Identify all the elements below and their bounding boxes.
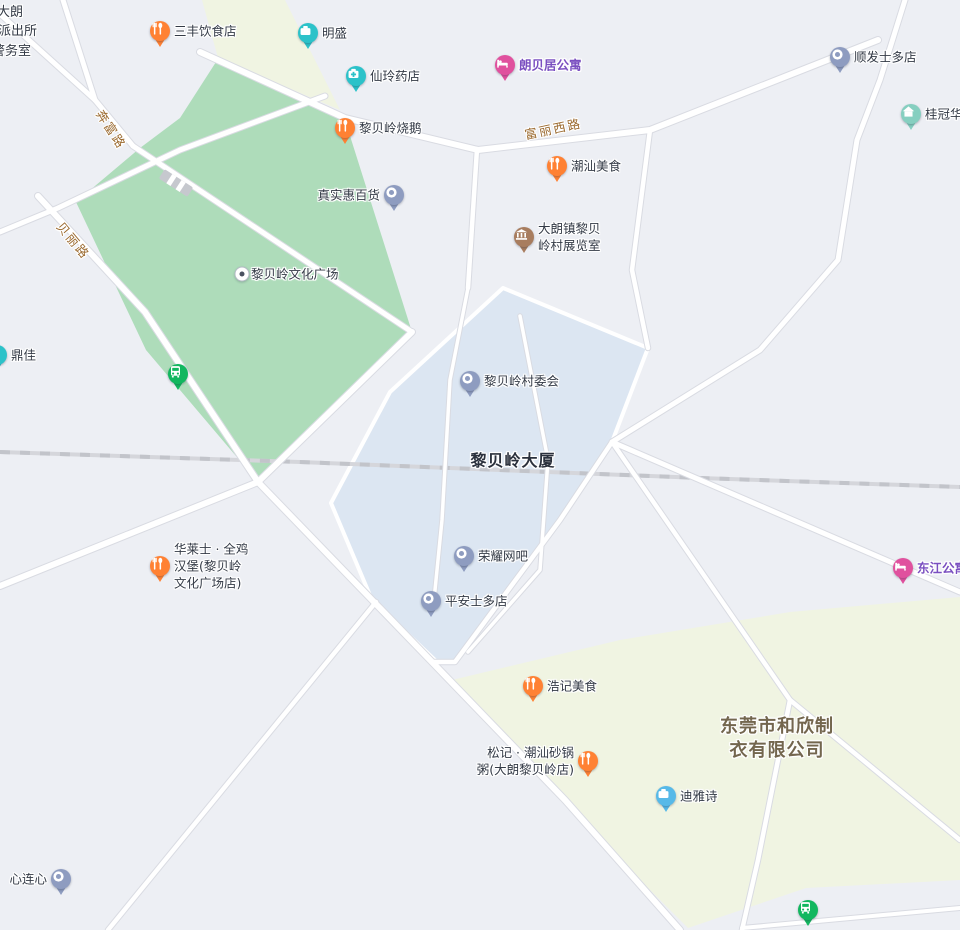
village-exhibition-room-label[interactable]: 大朗镇黎贝岭村展览室 (538, 220, 601, 254)
pin-head (523, 676, 543, 696)
pin-head (893, 558, 913, 578)
zhenshihui-store-label-line-1: 真实惠百货 (317, 187, 380, 204)
pin-head (335, 118, 355, 138)
ring-dot-icon (421, 591, 436, 606)
bus-icon (168, 364, 183, 379)
ring-dot-icon (51, 869, 66, 884)
xianling-pharmacy-label-line-1: 仙玲药店 (370, 68, 420, 85)
libeiling-roast-goose-pin[interactable] (334, 118, 356, 148)
village-exhibition-room-pin[interactable] (513, 227, 535, 257)
hualaishi-burger-label-line-1: 华莱士 · 全鸡 (174, 541, 248, 558)
libeiling-roast-goose-label[interactable]: 黎贝岭烧鹅 (359, 120, 422, 137)
langbeiju-apartment-label-line-1: 朗贝居公寓 (519, 57, 582, 74)
village-exhibition-room-label-line-2: 岭村展览室 (538, 237, 601, 254)
pingan-store-label-line-1: 平安士多店 (445, 593, 508, 610)
pin-head (51, 869, 71, 889)
bed-icon (495, 55, 510, 70)
songji-casserole-porridge-label-line-1: 松记 · 潮汕砂锅 (477, 744, 574, 761)
diyashi-pin[interactable] (655, 786, 677, 816)
map-viewport[interactable]: 三丰饮食店 明盛 仙玲药店 朗贝居公寓顺发士多店 桂冠华庭 黎贝岭烧鹅 潮汕美食… (0, 0, 960, 930)
shunfa-store-pin[interactable] (829, 47, 851, 77)
pin-head (901, 104, 921, 124)
dongjiang-apartment-label[interactable]: 东江公寓 (917, 560, 960, 577)
sanfeng-restaurant-pin[interactable] (149, 21, 171, 51)
ring-dot-icon (460, 371, 475, 386)
shunfa-store-label[interactable]: 顺发士多店 (854, 49, 917, 66)
village-committee-pin[interactable] (459, 371, 481, 401)
pin-head (298, 23, 318, 43)
xinlianxin-label-line-1: 心连心 (9, 871, 47, 888)
haoji-food-label[interactable]: 浩记美食 (547, 678, 597, 695)
chaoshan-food-label-line-1: 潮汕美食 (571, 158, 621, 175)
xinlianxin-pin[interactable] (50, 869, 72, 899)
langbeiju-apartment-pin[interactable] (494, 55, 516, 85)
songji-casserole-porridge-label-line-2: 粥(大朗黎贝岭店) (477, 761, 574, 778)
pin-head (150, 21, 170, 41)
ring-dot-icon (454, 546, 469, 561)
zhenshihui-store-pin[interactable] (383, 185, 405, 215)
pin-head (421, 591, 441, 611)
pin-head (547, 156, 567, 176)
police-station-label-line-3: 警务室 (0, 40, 31, 59)
fork-spoon-icon (150, 21, 165, 36)
pin-head (0, 345, 7, 365)
mingsheng-label-line-1: 明盛 (322, 25, 347, 42)
ring-dot-icon (830, 47, 845, 62)
pin-head (460, 371, 480, 391)
fork-spoon-icon (150, 556, 165, 571)
chaoshan-food-pin[interactable] (546, 156, 568, 186)
building-label-libeiling-dasha-line-1: 黎贝岭大厦 (470, 451, 555, 471)
culture-square-dot-marker[interactable] (235, 267, 250, 282)
shunfa-store-label-line-1: 顺发士多店 (854, 49, 917, 66)
culture-square-dot-label[interactable]: 黎贝岭文化广场 (251, 266, 339, 283)
house-icon (901, 104, 916, 119)
police-station-label-line-1: 局大朗 (0, 1, 23, 20)
xianling-pharmacy-label[interactable]: 仙玲药店 (370, 68, 420, 85)
company-label-hexin-line-1: 东莞市和欣制 (720, 715, 834, 739)
diyashi-label-line-1: 迪雅诗 (680, 788, 718, 805)
briefcase-icon (298, 23, 313, 38)
bus-icon (798, 900, 813, 915)
hualaishi-burger-label[interactable]: 华莱士 · 全鸡汉堡(黎贝岭文化广场店) (174, 541, 248, 592)
bus-stop-2-pin[interactable] (797, 900, 819, 930)
pin-head (656, 786, 676, 806)
songji-casserole-porridge-label[interactable]: 松记 · 潮汕砂锅粥(大朗黎贝岭店) (477, 744, 574, 778)
company-label-hexin: 东莞市和欣制衣有限公司 (720, 715, 834, 763)
pingan-store-label[interactable]: 平安士多店 (445, 593, 508, 610)
bank-columns-icon (514, 227, 529, 242)
medkit-icon (346, 66, 361, 81)
xinlianxin-label[interactable]: 心连心 (9, 871, 47, 888)
guiguan-huating-label[interactable]: 桂冠华庭 (925, 106, 960, 123)
village-exhibition-room-label-line-1: 大朗镇黎贝 (538, 220, 601, 237)
rongyao-internet-cafe-pin[interactable] (453, 546, 475, 576)
police-station-label-line-2: 派出所 (0, 20, 37, 39)
pin-head (168, 364, 188, 384)
zhenshihui-store-label[interactable]: 真实惠百货 (317, 187, 380, 204)
songji-casserole-porridge-pin[interactable] (577, 751, 599, 781)
briefcase-icon (0, 345, 2, 360)
company-label-hexin-line-2: 衣有限公司 (720, 739, 834, 763)
culture-square-dot-label-line-1: 黎贝岭文化广场 (251, 266, 339, 283)
rongyao-internet-cafe-label-line-1: 荣耀网吧 (478, 548, 528, 565)
fork-spoon-icon (523, 676, 538, 691)
rongyao-internet-cafe-label[interactable]: 荣耀网吧 (478, 548, 528, 565)
hualaishi-burger-pin[interactable] (149, 556, 171, 586)
pin-head (454, 546, 474, 566)
hualaishi-burger-label-line-2: 汉堡(黎贝岭 (174, 558, 248, 575)
building-label-libeiling-dasha: 黎贝岭大厦 (470, 451, 555, 471)
fork-spoon-icon (335, 118, 350, 133)
sanfeng-restaurant-label-line-1: 三丰饮食店 (174, 23, 237, 40)
pin-head (514, 227, 534, 247)
libeiling-roast-goose-label-line-1: 黎贝岭烧鹅 (359, 120, 422, 137)
haoji-food-label-line-1: 浩记美食 (547, 678, 597, 695)
mingsheng-label[interactable]: 明盛 (322, 25, 347, 42)
bus-stop-1-pin[interactable] (167, 364, 189, 394)
mingsheng-pin[interactable] (297, 23, 319, 53)
pingan-store-pin[interactable] (420, 591, 442, 621)
pin-head (150, 556, 170, 576)
dongjiang-apartment-pin[interactable] (892, 558, 914, 588)
village-committee-label-line-1: 黎贝岭村委会 (484, 373, 559, 390)
dingjia-label[interactable]: 鼎佳 (11, 347, 36, 364)
pin-head (495, 55, 515, 75)
diyashi-label[interactable]: 迪雅诗 (680, 788, 718, 805)
pin-head (384, 185, 404, 205)
fork-spoon-icon (547, 156, 562, 171)
chaoshan-food-label[interactable]: 潮汕美食 (571, 158, 621, 175)
guiguan-huating-label-line-1: 桂冠华庭 (925, 106, 960, 123)
pin-head (830, 47, 850, 67)
langbeiju-apartment-label[interactable]: 朗贝居公寓 (519, 57, 582, 74)
sanfeng-restaurant-label[interactable]: 三丰饮食店 (174, 23, 237, 40)
briefcase-icon (656, 786, 671, 801)
hualaishi-burger-label-line-3: 文化广场店) (174, 575, 248, 592)
bed-icon (893, 558, 908, 573)
pin-head (346, 66, 366, 86)
pin-head (578, 751, 598, 771)
dingjia-pin[interactable] (0, 345, 8, 375)
village-committee-label[interactable]: 黎贝岭村委会 (484, 373, 559, 390)
xianling-pharmacy-pin[interactable] (345, 66, 367, 96)
fork-spoon-icon (578, 751, 593, 766)
guiguan-huating-pin[interactable] (900, 104, 922, 134)
haoji-food-pin[interactable] (522, 676, 544, 706)
dingjia-label-line-1: 鼎佳 (11, 347, 36, 364)
dongjiang-apartment-label-line-1: 东江公寓 (917, 560, 960, 577)
ring-dot-icon (384, 185, 399, 200)
pin-head (798, 900, 818, 920)
